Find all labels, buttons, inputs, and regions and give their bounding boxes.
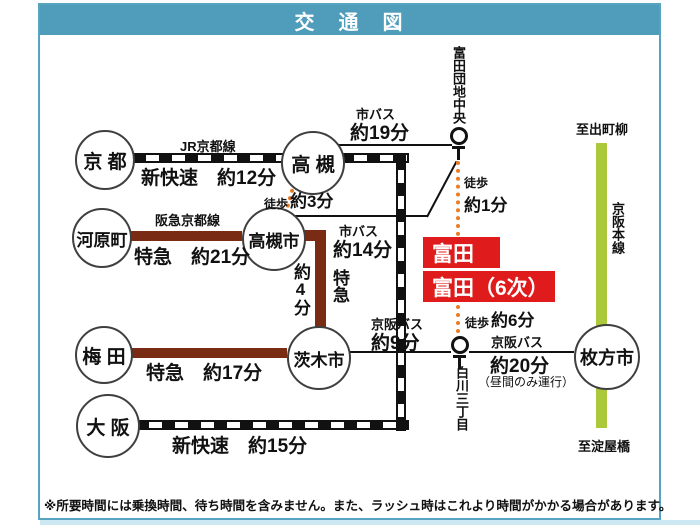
title-bar: 交 通 図 [40, 5, 659, 35]
hankyu-mid-time: 約4分 [288, 263, 313, 316]
station-hirakata-shi: 枚方市 [574, 324, 640, 390]
hankyu-umeda-time: 特急 約17分 [146, 358, 262, 385]
hankyu-kyoto-line-segment [128, 231, 242, 241]
station-kawaramachi: 河原町 [72, 208, 132, 268]
station-takatsuki-shi: 高槻市 [242, 207, 306, 271]
walk6-time: 約6分 [491, 306, 534, 331]
jr-kyoto-line-name: JR京都線 [180, 136, 236, 155]
keihan-main-line-name: 京阪本線 [608, 202, 627, 254]
walk1-time: 約1分 [464, 191, 507, 216]
page-title: 交 通 図 [295, 6, 405, 35]
station-ibaraki-shi: 茨木市 [287, 326, 351, 390]
jr-osaka-time: 新快速 約15分 [172, 431, 307, 458]
walk6-name: 徒歩 [465, 314, 489, 331]
city-bus14-line [294, 215, 427, 217]
walk3-time: 約3分 [290, 187, 333, 212]
bus-stop-tomita-danchi-label: 富田団地中央 [449, 46, 468, 124]
bus-stop-icon-tomita-danchi [448, 127, 469, 160]
hankyu-kyoto-line-time: 特急 約21分 [134, 242, 250, 269]
hankyu-mid-type: 特急 [327, 269, 352, 303]
city-bus14-time: 約14分 [333, 235, 392, 262]
keihan-bus20-note: （昼間のみ運行） [478, 373, 574, 390]
destination-badge-tomita: 富田 [423, 237, 500, 268]
walk3-name: 徒歩 [264, 195, 288, 212]
station-umeda: 梅 田 [75, 326, 133, 384]
bus-stop-shirakawa-label: 白川三丁目 [452, 366, 471, 431]
bottom-strip [40, 520, 700, 525]
city-bus19-time: 約19分 [350, 118, 409, 145]
jr-line-segment-osaka [134, 420, 409, 430]
walk1-dotted-line [456, 161, 460, 236]
hankyu-umeda-segment [129, 348, 287, 358]
jr-line-segment-vertical [396, 155, 406, 431]
destination-badge-tomita-6ji: 富田（6次） [423, 271, 555, 302]
walk1-name: 徒歩 [464, 174, 507, 191]
walk6-label: 徒歩 約6分 [465, 306, 534, 331]
keihan-bus9-time: 約9分 [371, 328, 420, 355]
transit-map-page: 交 通 図 ※所要時間には乗換時間、待ち時間を含みません。また、ラッシュ時はこれ… [0, 0, 700, 525]
walk1-label: 徒歩 約1分 [464, 174, 507, 216]
keihan-bus20-name: 京阪バス [491, 332, 543, 351]
keihan-to-demachiyanagi: 至出町柳 [576, 119, 628, 138]
station-kyoto: 京 都 [75, 130, 135, 190]
station-takatsuki: 高 槻 [281, 131, 345, 195]
jr-kyoto-line-time: 新快速 約12分 [141, 163, 276, 190]
keihan-to-yodoyabashi: 至淀屋橋 [578, 436, 630, 455]
hankyu-kyoto-line-name: 阪急京都線 [155, 210, 220, 229]
footnote: ※所要時間には乗換時間、待ち時間を含みません。また、ラッシュ時はこれより時間がか… [44, 495, 657, 514]
walk6-dotted-line [456, 305, 460, 333]
walk3-label: 徒歩 約3分 [264, 187, 333, 212]
station-osaka: 大 阪 [76, 394, 140, 458]
bus-stop-icon-shirakawa [449, 336, 470, 369]
